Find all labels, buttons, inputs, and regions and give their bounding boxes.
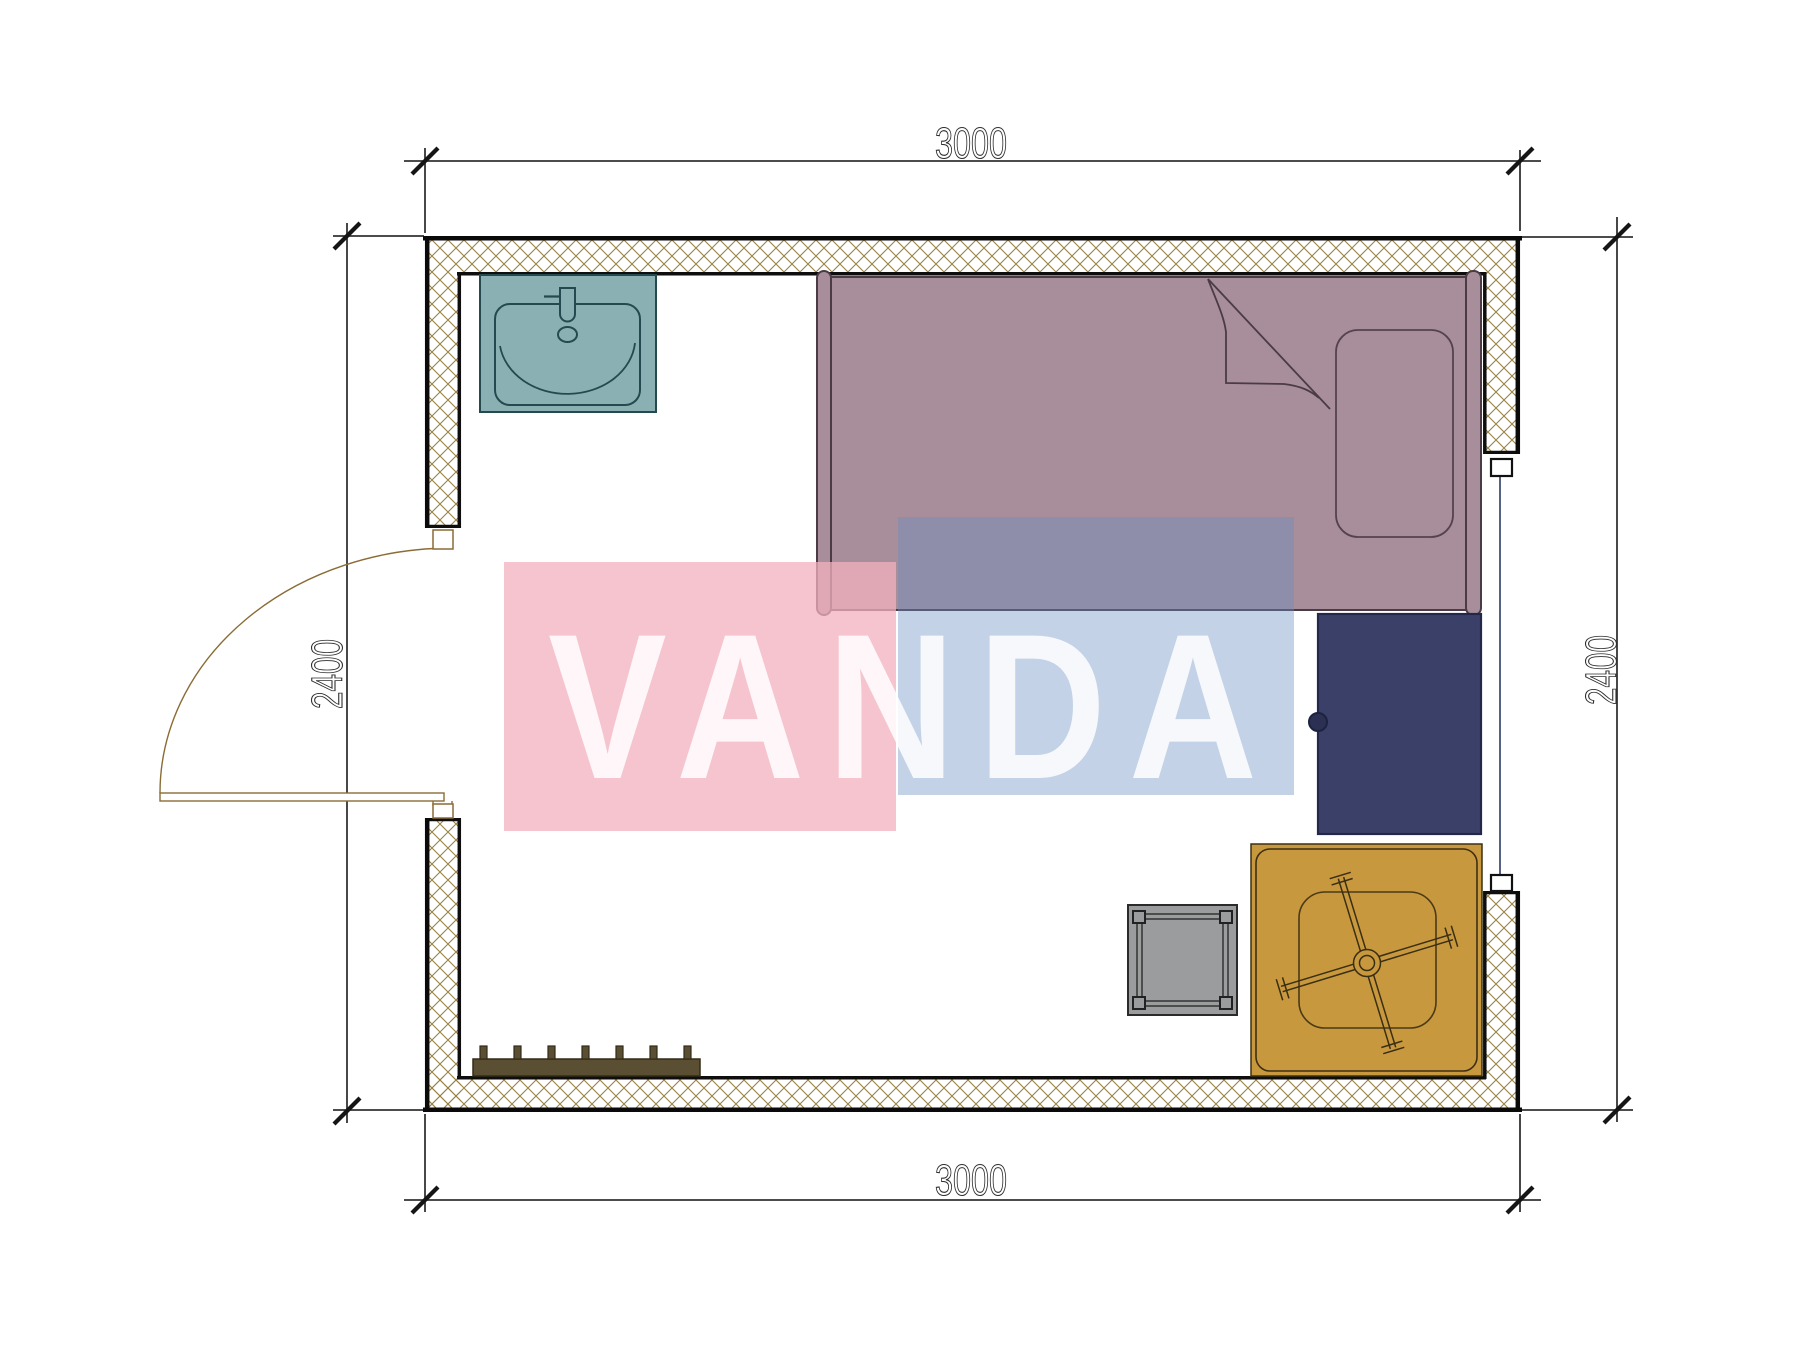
svg-text:2400: 2400 [303,639,352,709]
svg-text:3000: 3000 [935,119,1007,168]
svg-text:3000: 3000 [935,1156,1007,1205]
svg-text:2400: 2400 [1577,635,1626,705]
svg-text:VANDA: VANDA [548,590,1280,822]
